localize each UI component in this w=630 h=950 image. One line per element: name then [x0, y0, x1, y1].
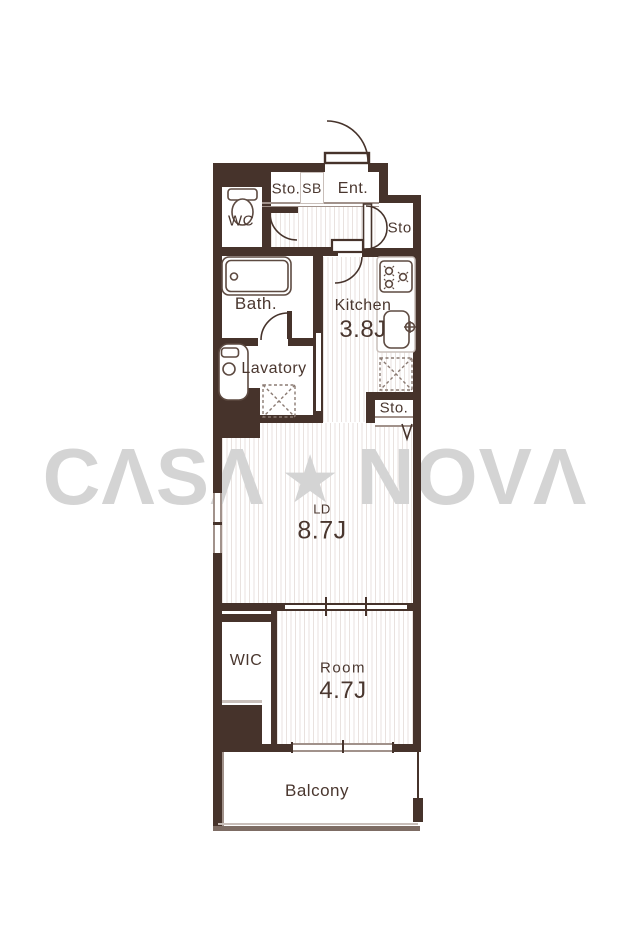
label-room: Room	[320, 660, 366, 677]
label-storage-kitchen: Sto.	[380, 400, 409, 417]
label-ld: LD	[313, 502, 331, 517]
washer-space-icon	[263, 385, 295, 417]
label-room-area: 4.7J	[319, 677, 366, 705]
label-storage-entrance: Sto.	[388, 220, 417, 237]
floorplan-canvas: CΛSΛ ★ NOVΛ	[0, 0, 630, 950]
label-bath: Bath.	[235, 294, 277, 314]
kitchen-door-arc	[335, 257, 362, 283]
label-ld-area: 8.7J	[297, 517, 346, 546]
bath-door-arc	[261, 313, 288, 340]
entrance-door-leaf	[325, 153, 369, 163]
label-shoe-box: SB	[302, 180, 322, 196]
label-wc: WC	[228, 213, 254, 230]
label-storage-top: Sto.	[272, 181, 301, 198]
storage-folding-door-icon	[402, 424, 412, 439]
hall-door-arc	[270, 213, 297, 240]
label-kitchen: Kitchen	[335, 297, 392, 315]
hall-door-leaf	[269, 207, 298, 213]
fixtures-overlay	[0, 0, 630, 950]
bath-door-leaf	[287, 311, 292, 339]
label-entrance: Ent.	[338, 180, 368, 198]
kitchen-door-leaf	[332, 240, 363, 252]
storage-entrance-door-panel	[364, 204, 372, 249]
bathtub-icon	[222, 257, 291, 295]
label-wic: WIC	[230, 652, 263, 670]
label-lavatory: Lavatory	[241, 360, 306, 378]
fridge-space-icon	[380, 358, 412, 390]
stove-icon	[380, 261, 412, 292]
label-kitchen-area: 3.8J	[339, 316, 386, 344]
label-balcony: Balcony	[285, 781, 349, 801]
